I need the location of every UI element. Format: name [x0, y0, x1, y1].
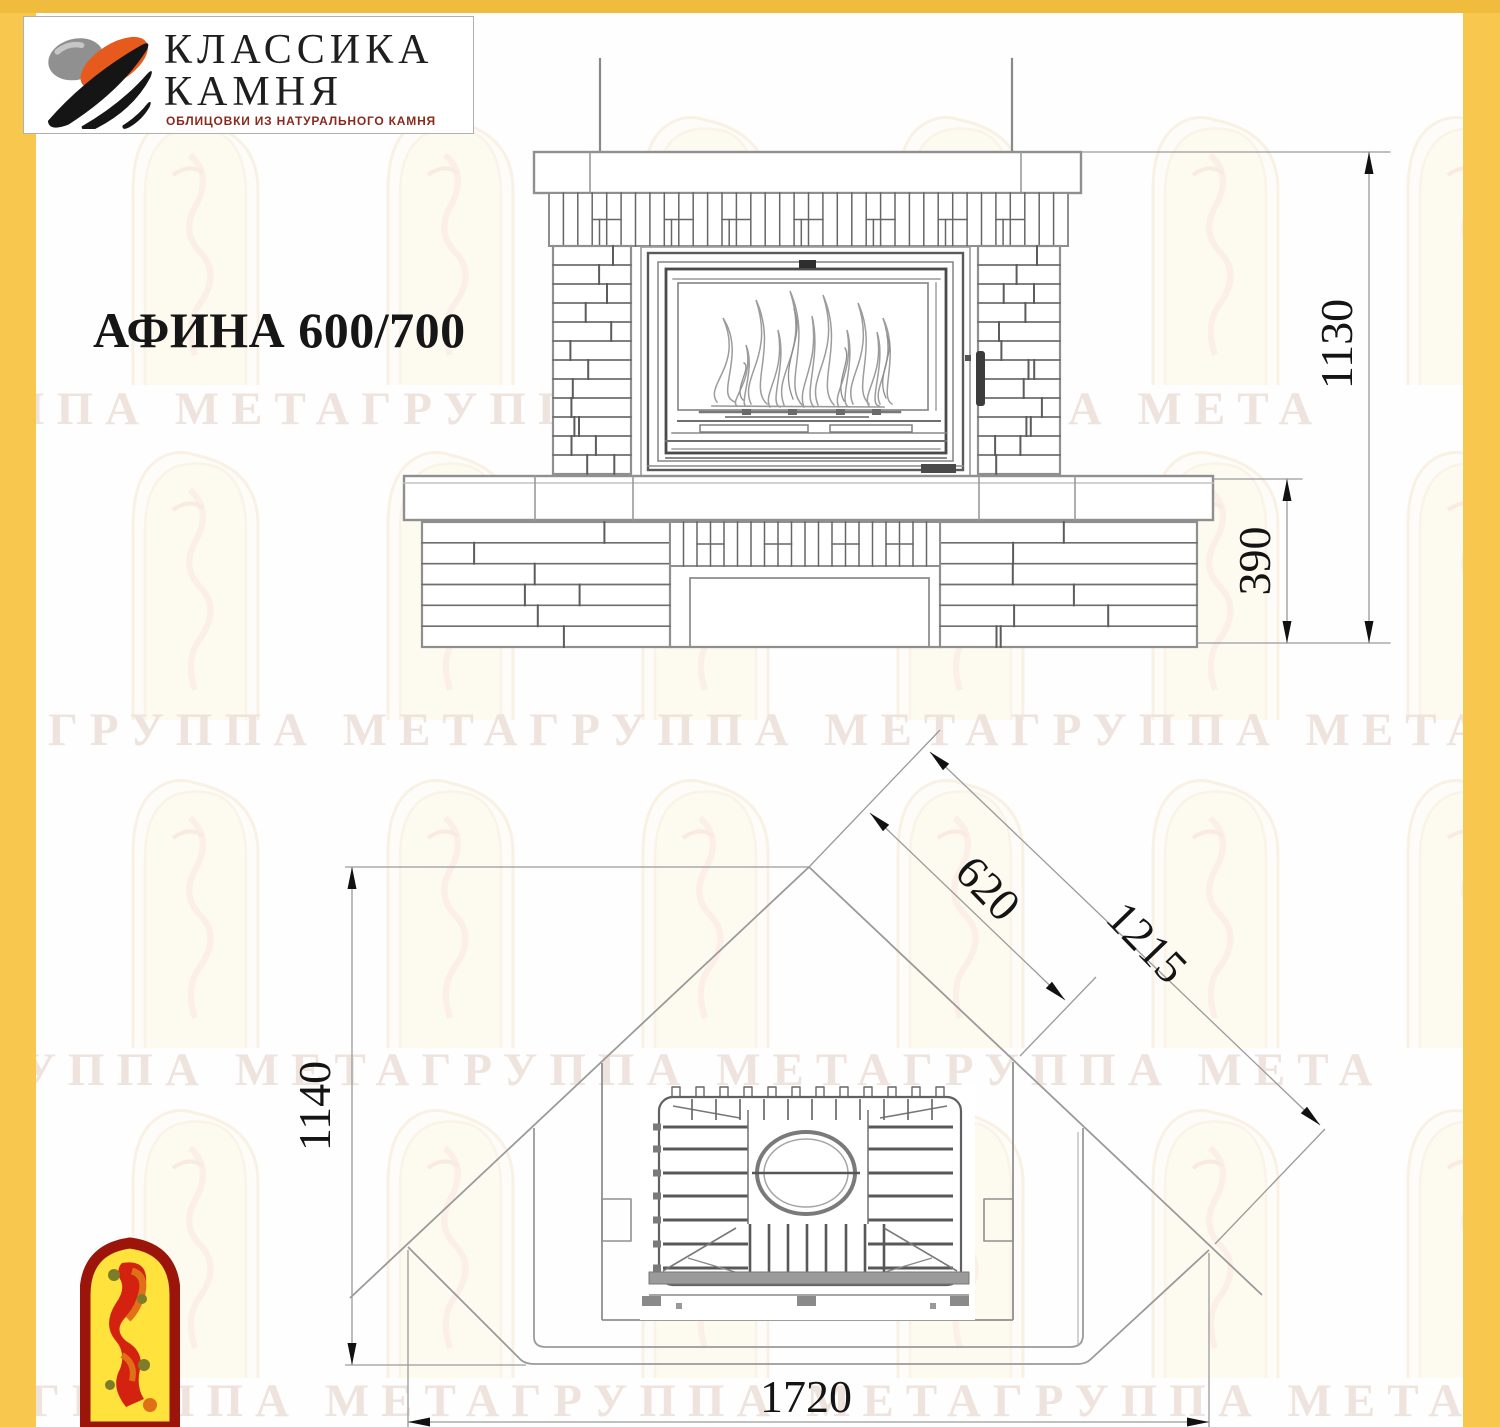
svg-text:390: 390	[1229, 527, 1280, 596]
svg-text:1140: 1140	[289, 1061, 340, 1151]
svg-text:620: 620	[946, 846, 1031, 931]
svg-text:1215: 1215	[1097, 891, 1198, 993]
svg-text:1130: 1130	[1311, 299, 1362, 389]
svg-text:1720: 1720	[760, 1371, 852, 1422]
